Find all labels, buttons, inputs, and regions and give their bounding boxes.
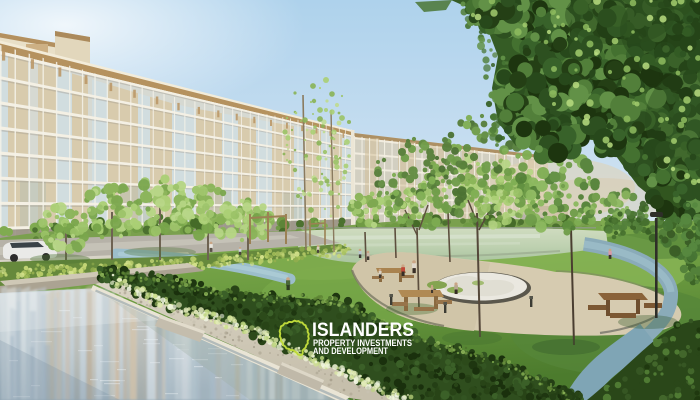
svg-text:AND DEVELOPMENT: AND DEVELOPMENT (313, 346, 388, 356)
